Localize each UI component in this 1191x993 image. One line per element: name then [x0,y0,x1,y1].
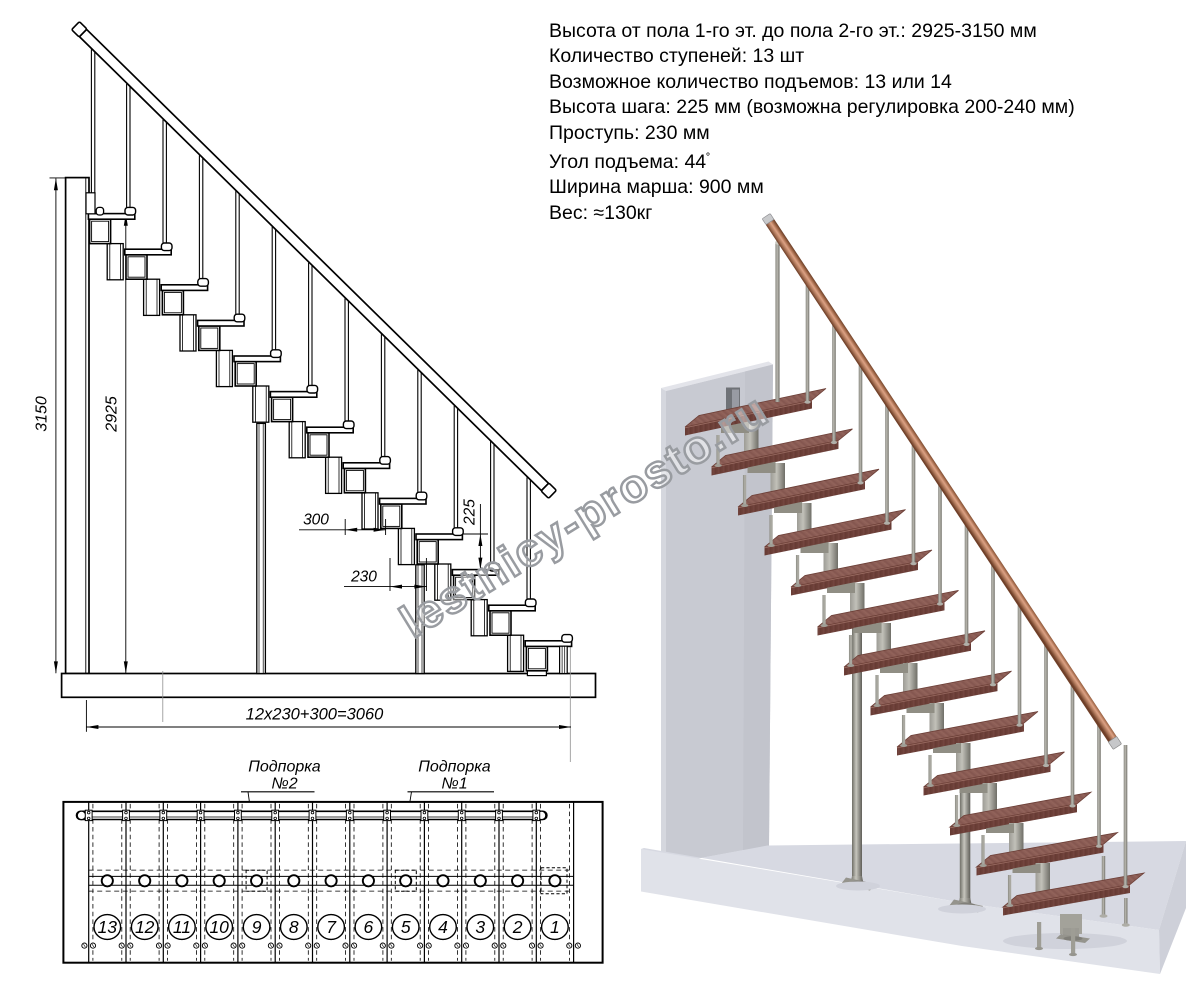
svg-text:6: 6 [364,917,374,937]
svg-text:1: 1 [550,917,560,937]
svg-text:№1: №1 [441,776,467,793]
svg-text:9: 9 [252,917,262,937]
svg-text:4: 4 [438,917,448,937]
svg-text:№2: №2 [271,776,297,793]
svg-text:3150: 3150 [34,396,51,432]
svg-text:Подпорка: Подпорка [418,759,490,776]
svg-text:230: 230 [350,569,377,586]
svg-text:11: 11 [173,917,191,937]
svg-text:2925: 2925 [104,396,121,433]
svg-text:3: 3 [475,917,485,937]
svg-text:225: 225 [462,499,479,526]
svg-text:13: 13 [98,917,118,937]
svg-text:8: 8 [289,917,299,937]
svg-text:12x230+300=3060: 12x230+300=3060 [246,706,384,724]
svg-text:7: 7 [326,917,337,937]
svg-text:5: 5 [401,917,411,937]
svg-text:10: 10 [209,917,229,937]
svg-text:300: 300 [303,512,329,529]
svg-text:Подпорка: Подпорка [248,759,320,776]
svg-text:2: 2 [512,917,523,937]
svg-text:12: 12 [135,917,155,937]
